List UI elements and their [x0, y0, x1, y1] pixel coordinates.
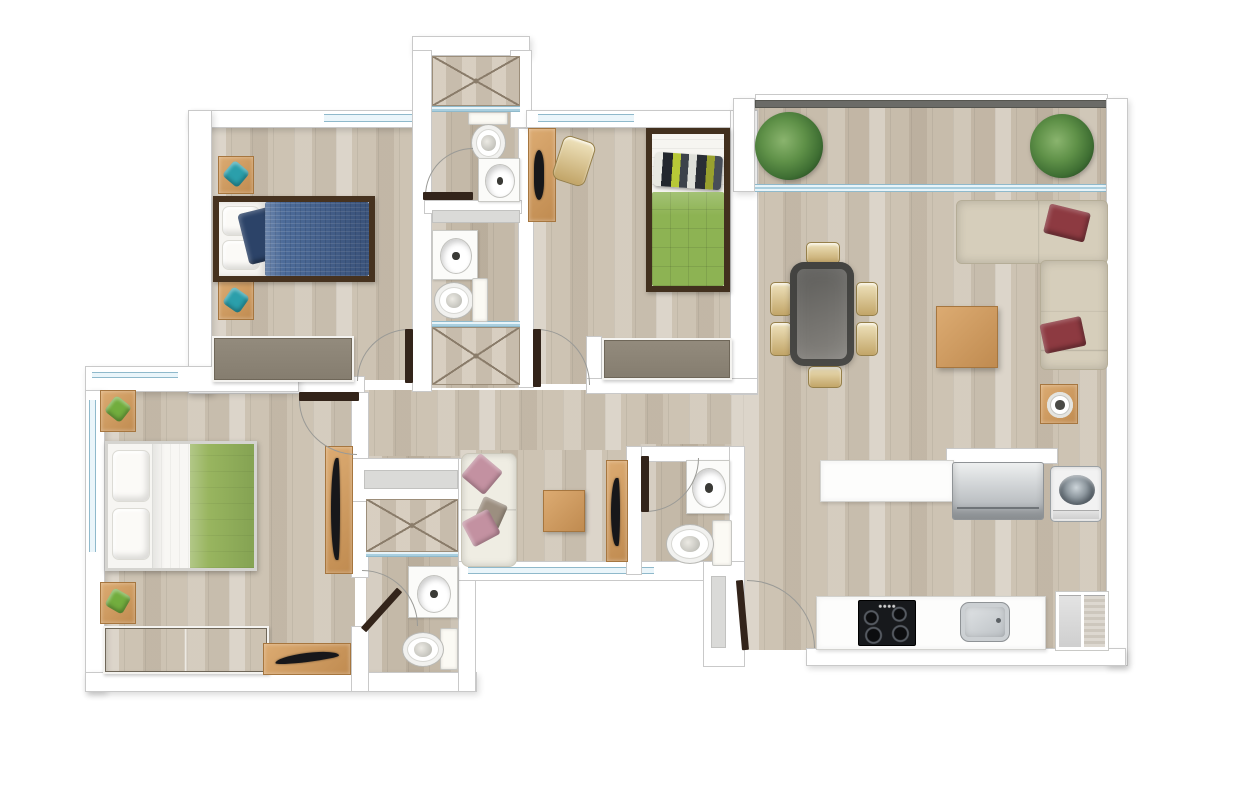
dining-chair [770, 322, 792, 356]
toilet-bowl [434, 282, 474, 319]
bed-pillow [112, 508, 150, 560]
sink-vanity-upper [478, 158, 520, 202]
wall-bedroom2-closet-bottom [586, 378, 758, 394]
bed-sheet [152, 444, 190, 568]
wall-tower-left [412, 50, 432, 392]
kitchen-sink [960, 602, 1010, 642]
sink-basin [440, 238, 472, 274]
dining-chair [856, 282, 878, 316]
dining-chair [806, 242, 840, 264]
balcony-plant [755, 112, 823, 180]
shower-upper [432, 56, 520, 106]
bedroom2-door-leaf [533, 329, 541, 387]
washing-machine [1050, 466, 1102, 522]
sink-vanity-lower [432, 230, 478, 280]
master-left-window [89, 400, 96, 552]
dining-chair [856, 322, 878, 356]
guestbath-door-leaf [641, 456, 649, 512]
wall-master-bottom [85, 672, 477, 692]
fridge [952, 462, 1044, 520]
wall-bedroom1-left [188, 110, 212, 394]
kitchen-island-counter [820, 460, 954, 502]
bedroom1-top-window [324, 114, 412, 122]
wardrobe-bedroom2 [602, 338, 732, 380]
master-top-window [92, 372, 178, 378]
dining-chair [770, 282, 792, 316]
wall-balcony-left [733, 98, 755, 192]
upper-bath-door-leaf [423, 192, 473, 200]
entry-pillar-vent [711, 576, 726, 648]
bed-pillow [112, 450, 150, 502]
toilet-tank [472, 278, 488, 322]
wall-right [1106, 98, 1128, 666]
sofa-right-arm [1040, 260, 1108, 370]
tv-master [331, 458, 340, 560]
master-duvet [190, 444, 254, 568]
washer-panel [1053, 510, 1099, 519]
sink-basin [692, 468, 726, 508]
pantry-door [1059, 595, 1081, 647]
masterbath-vent-window [364, 470, 458, 489]
pantry-door [1084, 595, 1105, 647]
bedroom2-top-window [538, 114, 634, 122]
master-door-leaf [299, 392, 359, 401]
cooktop [858, 600, 916, 646]
blue-duvet [265, 202, 369, 276]
single-bed-green [646, 128, 730, 292]
wall-kitchen-bottom [806, 648, 1126, 666]
tray [1047, 392, 1073, 418]
toilet-tank [712, 520, 732, 566]
washer-drum [1059, 475, 1095, 505]
kitchen-counter [816, 596, 1046, 650]
balcony-railing [755, 100, 1108, 108]
single-bed-blue [213, 196, 375, 282]
striped-pillow [653, 152, 723, 191]
pantry-closet [1056, 592, 1108, 650]
balcony-plant [1030, 114, 1094, 178]
wall-master-right-lower [351, 626, 369, 692]
sink-basin [417, 575, 451, 613]
laptop [534, 150, 544, 200]
bedroom1-door-leaf [405, 329, 413, 383]
tower-vent-window [432, 210, 520, 223]
wardrobe-bedroom1 [212, 336, 354, 382]
balcony-glass-wall [755, 184, 1108, 192]
wall-guestbath-left [626, 446, 642, 575]
toilet-bowl [402, 632, 444, 667]
sink-basin [485, 164, 515, 198]
dining-chair [808, 366, 842, 388]
toilet-bowl [471, 124, 506, 162]
tv-hall [611, 478, 620, 546]
side-table [1040, 384, 1078, 424]
toilet-bowl [666, 524, 714, 564]
coffee-table [936, 306, 998, 368]
hall-side-table [543, 490, 585, 532]
shower-master [366, 499, 458, 552]
green-duvet [652, 192, 724, 286]
wardrobe-master [103, 626, 269, 674]
floor-plan-canvas [0, 0, 1234, 800]
shower-lower [432, 327, 520, 385]
dining-table [790, 262, 854, 366]
double-bed-master [105, 441, 257, 571]
